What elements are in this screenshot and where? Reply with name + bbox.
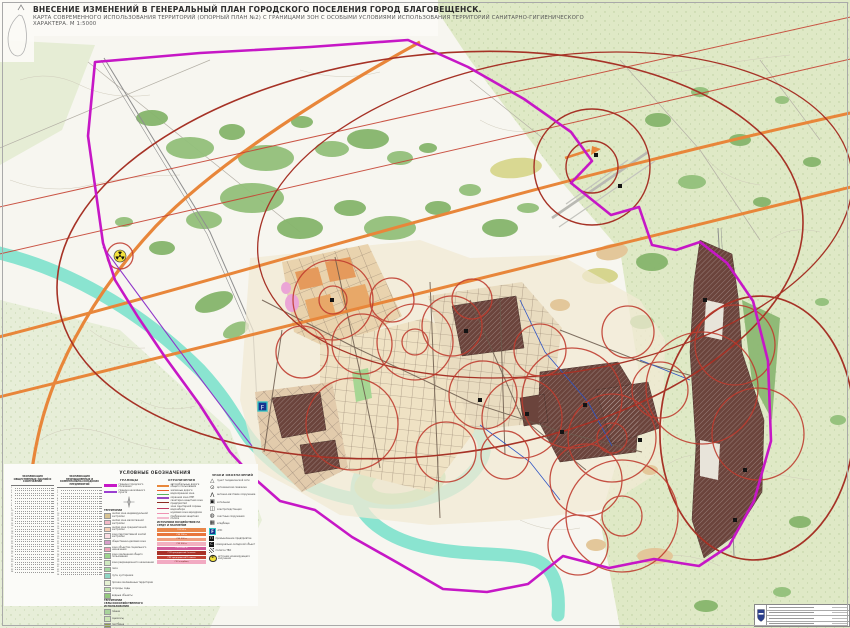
zone-color-chip <box>104 527 111 533</box>
border-swatch <box>104 491 117 493</box>
explication-table-1: ЭКСПЛИКАЦИЯ ОБЩЕСТВЕННЫХ ЗДАНИЙ И СООРУЖ… <box>11 476 54 573</box>
restriction-line-swatch <box>157 485 169 486</box>
zone-color-chip <box>104 573 111 579</box>
zone-color-chip <box>104 580 111 586</box>
zones-sub-header: ТЕРРИТОРИИ СЕЛЬСКОХОЗЯЙСТВЕННОГО ИСПОЛЬЗ… <box>104 600 154 608</box>
legend-item-label: сенокосы <box>112 618 154 620</box>
legend-zone-item: луга, кустарники <box>104 573 154 579</box>
borders-list: граница городского поселенияграница насе… <box>104 484 154 495</box>
zones-sub-list: пашнисенокосыпастбищапрочие угодья <box>104 609 154 628</box>
legend-zone-item: огороды, сады <box>104 587 154 593</box>
zone-color-chip <box>104 560 111 566</box>
legend-zone-item: зона перспективной жилой застройки <box>104 533 154 539</box>
zone-color-chip <box>104 616 111 622</box>
legend-sign-item: АЗС <box>209 528 256 535</box>
well-icon <box>209 486 216 492</box>
explication-table-2: ЭКСПЛИКАЦИЯ ПРОМЫШЛЕННЫХ И КОММУНАЛЬНО-С… <box>57 476 102 576</box>
zone-color-chip <box>104 609 111 615</box>
legend-zone-item: пастбища <box>104 623 154 628</box>
impact-bar-label: СЗЗ кладбищ <box>174 561 188 563</box>
impact-bar-label: СЗЗ 300 м <box>176 538 187 540</box>
restrictions-list: автомобильные дороги общего пользованияж… <box>157 484 206 521</box>
legend-zone-item: леса <box>104 567 154 573</box>
legend-item-label: зона рекреационного назначения <box>112 562 154 564</box>
zone-color-chip <box>104 540 111 546</box>
signs-list: пункт геодезической сетиартезианская скв… <box>209 479 256 563</box>
legend-sign-item: очистные сооружения <box>209 514 256 520</box>
restriction-line-swatch <box>157 502 169 503</box>
legend-item-label: источник ионизирующего излучения <box>218 556 256 561</box>
legend-item-label: коммунально-складской объект <box>216 544 257 546</box>
legend-item-label: жилая зона малоэтажной застройки <box>112 520 154 525</box>
plan-sheet: F ВНЕСЕНИЕ ИЗМЕНЕНИЙ В ГЕНЕРАЛЬНЫЙ ПЛАН … <box>0 0 850 628</box>
legend-item-label: водные объекты <box>112 595 154 597</box>
zone-color-chip <box>104 567 111 573</box>
legend-zone-item: жилая зона индивидуальной застройки <box>104 513 154 519</box>
warehouse-icon <box>209 542 214 547</box>
title-block: ВНЕСЕНИЕ ИЗМЕНЕНИЙ В ГЕНЕРАЛЬНЫЙ ПЛАН ГО… <box>33 5 593 27</box>
impact-bar-label: СЗЗ предприятий II класса <box>167 557 195 559</box>
impact-bars: СЗЗ 50 мСЗЗ 100 мСЗЗ 300 мСЗЗ 500 мСЗЗ 1… <box>157 528 206 563</box>
legend-item-label: АЗС <box>218 530 257 532</box>
impact-bar: СЗЗ кладбищ <box>157 560 206 563</box>
legend-item-label: очистные сооружения <box>217 516 256 518</box>
legend-zone-item: общественно-деловая зона <box>104 540 154 546</box>
legend-column-signs: ЗНАКИ ОБОЗНАЧЕНИЙ пункт геодезической се… <box>209 472 256 563</box>
impact-header: ИСТОЧНИКИ ВОЗДЕЙСТВИЯ НА СРЕДУ И НАСЕЛЕН… <box>157 522 206 527</box>
legend-sign-item: полигон ТБО <box>209 548 256 553</box>
legend-column-borders-zones: ГРАНИЦЫ граница городского поселениягран… <box>104 477 154 628</box>
restriction-line-swatch <box>157 508 169 509</box>
stamp-row <box>767 622 849 627</box>
legend-sign-item: кладбище <box>209 521 256 527</box>
restrictions-header: ОГРАНИЧЕНИЯ <box>157 478 206 482</box>
legend-item-label: зона объектов социального назначения <box>112 547 154 552</box>
impact-bar: СЗЗ 100 м <box>157 533 206 536</box>
legend-zone-item: жилая зона среднеэтажной застройки <box>104 527 154 533</box>
legend-zone-item: прочие озеленённые территории <box>104 580 154 586</box>
impact-bar: СЗЗ 300 м <box>157 538 206 541</box>
zones-list: жилая зона индивидуальной застройкижилая… <box>104 513 154 599</box>
legend-sign-item: антенно-мачтовое сооружение <box>209 493 256 499</box>
compass-icon <box>123 496 135 508</box>
zone-color-chip <box>104 593 111 599</box>
legend-zone-item: пашни <box>104 609 154 615</box>
legend-zone-item: жилая зона малоэтажной застройки <box>104 520 154 526</box>
legend-sign-item: источник ионизирующего излучения <box>209 555 256 563</box>
legend-sign-item: котельная <box>209 500 256 506</box>
radiation-icon <box>209 555 217 563</box>
borders-header: ГРАНИЦЫ <box>104 478 154 482</box>
legend-item-label: пастбища <box>112 624 154 626</box>
legend-zone-item: сенокосы <box>104 616 154 622</box>
restriction-line-swatch <box>157 513 169 514</box>
impact-bar-label: СЗЗ 100 м <box>176 534 187 536</box>
page-title: ВНЕСЕНИЕ ИЗМЕНЕНИЙ В ГЕНЕРАЛЬНЫЙ ПЛАН ГО… <box>33 5 593 14</box>
title-block-stamp <box>754 604 850 627</box>
legend-item-label: жилая зона индивидуальной застройки <box>112 513 154 518</box>
legend-item-label: зона озеленения общего пользования <box>112 554 154 559</box>
restriction-line-swatch <box>157 490 169 491</box>
explication-rows: 1234567891011121314151617181920212223242… <box>57 489 102 576</box>
impact-bar: СЗЗ 1000 м <box>157 547 206 550</box>
boiler-icon <box>209 500 216 506</box>
legend-sign-item: коммунально-складской объект <box>209 542 256 547</box>
legend-sign-item: электроподстанция <box>209 507 256 513</box>
legend-item-label: автомобильные дороги общего пользования <box>171 484 207 489</box>
legend-zone-item: зона рекреационного назначения <box>104 560 154 566</box>
impact-bar-label: СЗЗ предприятий I класса <box>168 552 196 554</box>
zone-color-chip <box>104 520 111 526</box>
legend-item-label: общественно-деловая зона <box>112 541 154 543</box>
keymap-strip <box>0 0 34 62</box>
legend-column-restrictions: ОГРАНИЧЕНИЯ автомобильные дороги общего … <box>157 477 206 565</box>
legend-sign-item: промышленное предприятие <box>209 536 256 541</box>
restriction-line-swatch <box>157 517 169 518</box>
legend-item-label: пункт геодезической сети <box>217 480 256 482</box>
landfill-icon <box>209 548 214 553</box>
impact-bar-label: СЗЗ 500 м <box>176 543 187 545</box>
legend-item-label: электроподстанция <box>217 509 256 511</box>
impact-bar-label: СЗЗ 1000 м <box>176 547 188 549</box>
legend-item-label: котельная <box>217 502 256 504</box>
legend-item-label: артезианская скважина <box>217 487 256 489</box>
legend-item-label: зона перспективной жилой застройки <box>112 534 154 539</box>
signs-header: ЗНАКИ ОБОЗНАЧЕНИЙ <box>209 473 256 477</box>
legend-item-label: полигон ТБО <box>216 550 257 552</box>
restriction-line-swatch <box>157 497 169 498</box>
radiation-source-icon <box>114 250 126 262</box>
zone-color-chip <box>104 513 111 519</box>
fuel-station-icon: F <box>258 402 267 412</box>
zone-color-chip <box>104 553 111 559</box>
impact-bar: СЗЗ 50 м <box>157 528 206 531</box>
coat-of-arms-icon <box>755 605 767 626</box>
legend-header: УСЛОВНЫЕ ОБОЗНАЧЕНИЯ <box>102 470 208 475</box>
border-swatch <box>104 484 117 487</box>
substation-icon <box>209 507 216 513</box>
fuel-icon <box>209 528 216 535</box>
impact-bar: СЗЗ предприятий I класса <box>157 551 206 554</box>
legend-sign-item: артезианская скважина <box>209 486 256 492</box>
legend-panel: УСЛОВНЫЕ ОБОЗНАЧЕНИЯ ЭКСПЛИКАЦИЯ ОБЩЕСТВ… <box>4 464 258 606</box>
legend-item-label: прибрежная защитная полоса <box>171 516 207 521</box>
legend-zone-item: зона объектов социального назначения <box>104 547 154 553</box>
page-subtitle: КАРТА СОВРЕМЕННОГО ИСПОЛЬЗОВАНИЯ ТЕРРИТО… <box>33 15 593 27</box>
legend-border-item: граница городского поселения <box>104 484 154 489</box>
zone-color-chip <box>104 587 111 593</box>
zone-color-chip <box>104 547 111 553</box>
restriction-line-swatch <box>157 494 169 495</box>
legend-restriction-item: автомобильные дороги общего пользования <box>157 484 206 489</box>
legend-item-label: граница городского поселения <box>119 484 155 489</box>
legend-item-label: жилая зона среднеэтажной застройки <box>112 527 154 532</box>
legend-border-item: граница населённого пункта <box>104 490 154 495</box>
industrial-icon <box>209 536 214 541</box>
zone-color-chip <box>104 623 111 628</box>
explication-rows: 1234567891011121314151617181920212223242… <box>11 487 54 574</box>
legend-item-label: кладбище <box>217 523 256 525</box>
legend-sign-item: пункт геодезической сети <box>209 479 256 485</box>
explication-table-title: ЭКСПЛИКАЦИЯ ОБЩЕСТВЕННЫХ ЗДАНИЙ И СООРУЖ… <box>11 476 54 486</box>
legend-item-label: леса <box>112 568 154 570</box>
legend-zone-item: водные объекты <box>104 593 154 599</box>
legend-item-label: граница населённого пункта <box>119 490 155 495</box>
impact-bar: СЗЗ предприятий II класса <box>157 556 206 559</box>
legend-item-label: пашни <box>112 611 154 613</box>
legend-item-label: антенно-мачтовое сооружение <box>217 494 256 496</box>
impact-bar: СЗЗ 500 м <box>157 542 206 545</box>
triangle-icon <box>209 479 216 485</box>
explication-row: 34 <box>11 571 54 574</box>
legend-item-label: огороды, сады <box>112 588 154 590</box>
legend-restriction-item: прибрежная защитная полоса <box>157 516 206 521</box>
explication-table-title: ЭКСПЛИКАЦИЯ ПРОМЫШЛЕННЫХ И КОММУНАЛЬНО-С… <box>57 476 102 488</box>
stamp-rows <box>767 605 849 626</box>
cemetery-icon <box>209 521 216 527</box>
treatment-icon <box>209 514 216 520</box>
legend-zone-item: зона озеленения общего пользования <box>104 553 154 559</box>
legend-item-label: прочие озеленённые территории <box>112 582 154 584</box>
svg-text:F: F <box>261 405 265 412</box>
impact-bar-label: СЗЗ 50 м <box>177 529 186 531</box>
zone-color-chip <box>104 533 111 539</box>
explication-row: 34 <box>57 573 102 576</box>
tower-icon <box>209 493 216 499</box>
legend-item-label: луга, кустарники <box>112 575 154 577</box>
legend-item-label: промышленное предприятие <box>216 538 257 540</box>
